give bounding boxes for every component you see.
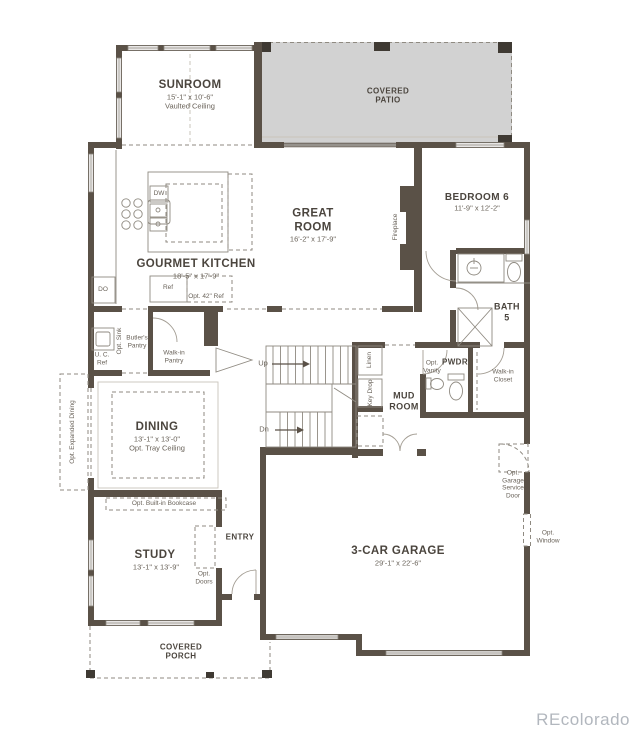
kitchen-dims: 18'-5" x 17'-9" (173, 273, 219, 282)
opt-vanity-label: Opt. Vanity (419, 359, 445, 374)
island-sink (150, 204, 167, 217)
bedroom6-dims: 11'-9" x 12'-2" (454, 205, 500, 214)
watermark: REcolorado (536, 710, 630, 730)
garage-dims: 29'-1" x 22'-6" (375, 560, 421, 569)
kitchen-counter (228, 174, 252, 250)
fireplace-label: Fireplace (392, 214, 400, 241)
sunroom-note: Vaulted Ceiling (165, 103, 215, 112)
floorplan-drawing (0, 0, 635, 734)
uc-ref-label: U. C. Ref (91, 351, 113, 366)
uc-ref-box (92, 328, 114, 350)
mudroom-door-left (383, 434, 400, 451)
opt-bookcase-label: Opt. Built-in Bookcase (132, 500, 196, 508)
bath5-toilet (506, 254, 522, 261)
kitchen-label: GOURMET KITCHEN (136, 258, 255, 272)
mud-room-label: MUD ROOM (382, 390, 426, 411)
do-label: DO (98, 286, 108, 294)
dining-note: Opt. Tray Ceiling (129, 445, 185, 454)
great-room-label: GREAT ROOM (277, 207, 349, 234)
doors (153, 251, 504, 594)
study-dims: 13'-1" x 13'-9" (133, 564, 179, 573)
pwdr-toilet (448, 374, 464, 380)
study-label: STUDY (135, 549, 176, 563)
walkin-closet-label: Walk-in Closet (486, 368, 520, 383)
dn-label: Dn (259, 426, 269, 435)
bath5-label: BATH 5 (490, 301, 524, 322)
cooktop (122, 199, 130, 207)
mudroom-bench (357, 416, 383, 446)
opt-expanded-dining-label: Opt. Expanded Dining (69, 400, 77, 464)
entry-label: ENTRY (226, 532, 255, 541)
floor-plan: SUNROOM 15'-1" x 10'-6" Vaulted Ceiling … (0, 0, 635, 734)
porch-post (262, 670, 272, 678)
sunroom-label: SUNROOM (159, 79, 222, 93)
butlers-pantry-label: Butler's Pantry (120, 334, 154, 349)
porch-post (86, 670, 95, 678)
opt-window-label: Opt. Window (533, 529, 563, 544)
great-room-dims: 16'-2" x 17'-9" (290, 236, 336, 245)
pwdr-label: PWDR (442, 357, 468, 366)
ref-label: Ref (163, 284, 173, 292)
opt-doors-label: Opt. Doors (192, 570, 216, 585)
bath5-door (456, 288, 478, 310)
dw-label: DW (154, 190, 165, 198)
key-drop-label: Key Drop (367, 379, 375, 406)
garage-label: 3-CAR GARAGE (351, 545, 445, 559)
up-label: Up (258, 360, 268, 369)
sliding-door (280, 142, 400, 148)
mudroom-door-right (400, 434, 417, 451)
bedroom6-label: BEDROOM 6 (445, 192, 509, 204)
fixtures (92, 150, 530, 407)
covered-porch-label: COVERED PORCH (154, 643, 208, 662)
linen-label: Linen (366, 352, 374, 368)
opt-doors-outline (195, 526, 215, 568)
fireplace (400, 186, 414, 270)
opt-ref-label: Opt. 42" Ref (188, 293, 224, 301)
covered-patio-label: COVERED PATIO (359, 87, 417, 106)
dining-label: DINING (136, 421, 179, 435)
porch-post (206, 672, 214, 678)
angled-door (216, 348, 252, 372)
opt-service-door-label: Opt. Garage Service Door (498, 470, 528, 501)
pantry-door (153, 318, 177, 342)
walkin-pantry-label: Walk-in Pantry (157, 349, 191, 364)
stairs (266, 346, 356, 447)
